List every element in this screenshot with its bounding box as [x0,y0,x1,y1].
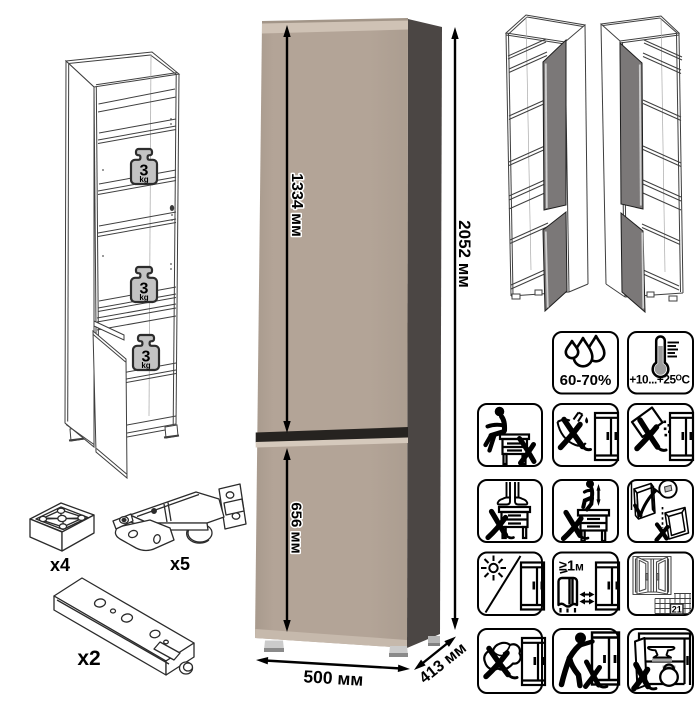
svg-text:x5: x5 [170,554,190,574]
svg-text:+10...+25OC: +10...+25OC [629,373,690,387]
svg-text:500 мм: 500 мм [303,666,364,690]
svg-text:1334 мм: 1334 мм [288,173,305,237]
svg-text:60-70%: 60-70% [560,372,612,389]
svg-text:656 мм: 656 мм [288,502,305,553]
svg-text:21: 21 [672,605,682,615]
svg-text:x2: x2 [77,647,100,670]
svg-text:2052 мм: 2052 мм [455,220,474,288]
svg-text:x4: x4 [50,555,70,575]
